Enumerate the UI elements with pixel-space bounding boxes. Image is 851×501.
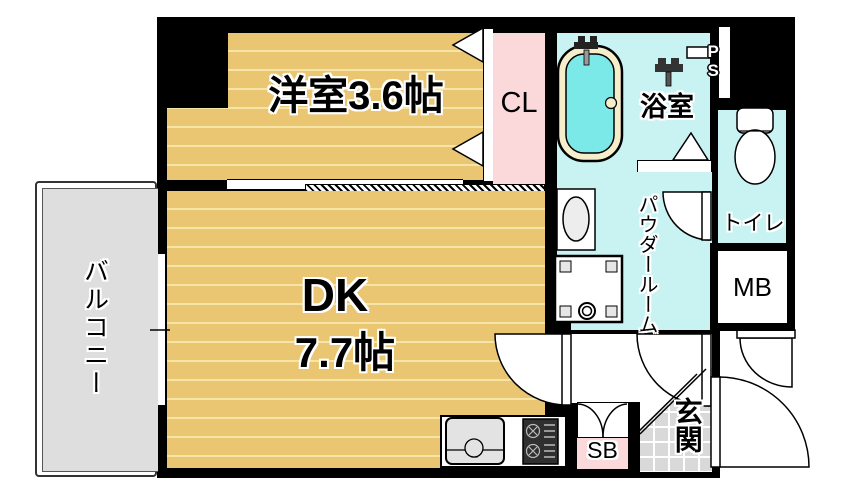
floor-plan: MB xyxy=(0,0,851,501)
meter-box-door-swing xyxy=(737,330,795,387)
toilet-label: トイレ xyxy=(713,212,793,235)
wash-basin-icon xyxy=(557,189,595,250)
entrance-label: 玄関 xyxy=(671,397,702,453)
closet-label: CL xyxy=(489,88,549,120)
bathroom-door-icon xyxy=(673,133,708,160)
western-room-label: 洋室3.6帖 xyxy=(196,74,516,118)
powder-room-label: パウダールーム xyxy=(632,194,659,294)
stove-icon xyxy=(523,419,558,464)
meter-box: MB xyxy=(710,243,795,331)
dk-size-label: 7.7帖 xyxy=(265,330,425,376)
shoe-box-label: SB xyxy=(577,438,628,463)
toilet-icon xyxy=(735,108,775,184)
toilet-door-swing xyxy=(663,192,711,240)
hallway-door-swing xyxy=(637,334,711,406)
shoe-box-door-swing xyxy=(578,404,627,437)
bathroom-label: 浴室 xyxy=(617,93,717,123)
entrance-door-swing xyxy=(711,377,809,467)
dk-label: DK xyxy=(255,270,415,321)
shower-mixer-icon xyxy=(655,58,683,86)
balcony-label: バルコニー xyxy=(80,258,108,398)
dk-door-swing xyxy=(495,334,571,405)
meter-box-label: MB xyxy=(733,273,772,302)
washer-pan-icon xyxy=(555,256,622,322)
kitchen-sink-icon xyxy=(446,418,504,464)
bathtub-icon xyxy=(558,36,622,161)
pipe-space-label: PS xyxy=(703,42,722,80)
